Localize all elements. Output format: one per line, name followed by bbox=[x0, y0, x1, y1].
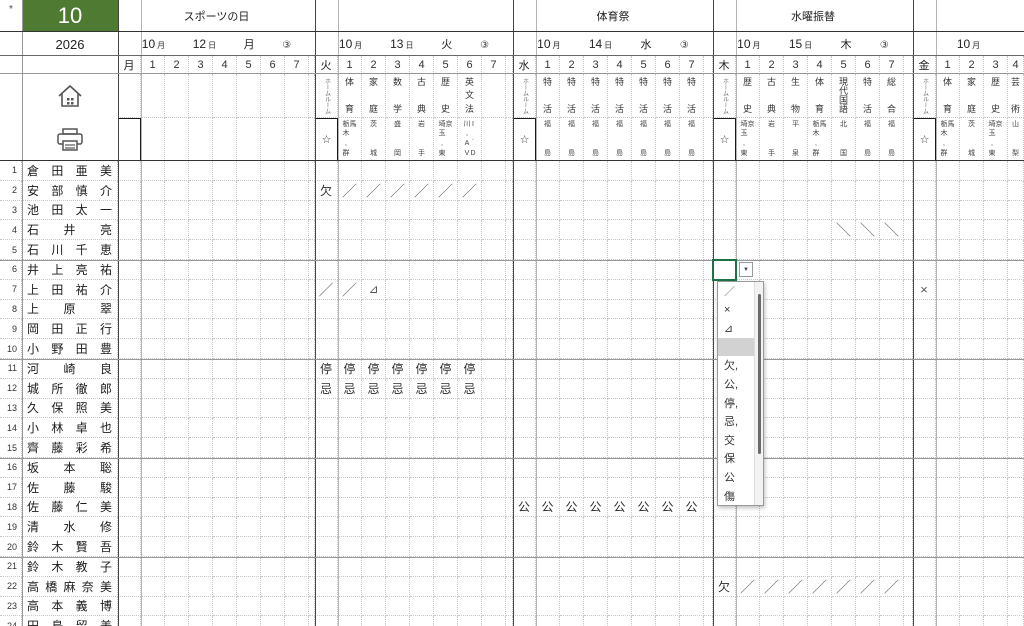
grid-cell[interactable] bbox=[189, 319, 213, 339]
grid-cell[interactable] bbox=[237, 537, 261, 557]
teacher-header[interactable]: 福島 bbox=[608, 118, 632, 161]
spacer-cell[interactable] bbox=[506, 339, 513, 359]
grid-cell[interactable] bbox=[960, 498, 984, 518]
subject-header[interactable]: 古典 bbox=[760, 74, 784, 118]
grid-cell[interactable] bbox=[1008, 319, 1024, 339]
grid-cell[interactable] bbox=[936, 418, 960, 438]
grid-cell[interactable] bbox=[118, 181, 141, 201]
grid-cell[interactable] bbox=[856, 201, 880, 221]
grid-cell[interactable] bbox=[680, 557, 704, 577]
grid-cell[interactable] bbox=[913, 260, 936, 280]
grid-cell[interactable] bbox=[434, 220, 458, 240]
grid-cell[interactable] bbox=[513, 379, 536, 399]
grid-cell[interactable] bbox=[608, 379, 632, 399]
grid-cell[interactable] bbox=[936, 517, 960, 537]
grid-cell[interactable] bbox=[832, 557, 856, 577]
dropdown-item[interactable]: ⊿ bbox=[718, 319, 756, 338]
grid-cell[interactable] bbox=[165, 577, 189, 597]
grid-cell[interactable] bbox=[362, 418, 386, 438]
grid-cell[interactable] bbox=[608, 597, 632, 617]
grid-cell[interactable] bbox=[1008, 220, 1024, 240]
grid-cell[interactable] bbox=[410, 438, 434, 458]
teacher-header[interactable]: 福島 bbox=[680, 118, 704, 161]
grid-cell[interactable] bbox=[784, 616, 808, 626]
grid-cell[interactable] bbox=[118, 240, 141, 260]
grid-cell[interactable] bbox=[338, 201, 362, 221]
grid-cell[interactable] bbox=[984, 537, 1008, 557]
grid-cell[interactable] bbox=[362, 597, 386, 617]
grid-cell[interactable] bbox=[410, 319, 434, 339]
grid-cell[interactable] bbox=[261, 517, 285, 537]
spacer-cell[interactable] bbox=[704, 161, 713, 181]
spacer-cell[interactable] bbox=[904, 498, 913, 518]
spacer-cell[interactable] bbox=[904, 319, 913, 339]
grid-cell[interactable] bbox=[1008, 478, 1024, 498]
grid-cell[interactable] bbox=[984, 498, 1008, 518]
grid-cell[interactable] bbox=[189, 399, 213, 419]
grid-cell[interactable] bbox=[338, 418, 362, 438]
grid-cell[interactable] bbox=[808, 498, 832, 518]
grid-cell[interactable] bbox=[1008, 438, 1024, 458]
period-header[interactable]: 3 bbox=[189, 56, 213, 74]
dropdown-item[interactable]: 欠, bbox=[718, 356, 756, 375]
grid-cell[interactable] bbox=[458, 616, 482, 626]
grid-cell[interactable] bbox=[880, 240, 904, 260]
row-number[interactable]: 16 bbox=[0, 458, 22, 478]
grid-cell[interactable] bbox=[960, 201, 984, 221]
grid-cell[interactable] bbox=[458, 438, 482, 458]
grid-cell[interactable]: 忌 bbox=[458, 379, 482, 399]
star-cell[interactable]: ☆ bbox=[913, 118, 936, 161]
grid-cell[interactable] bbox=[482, 478, 506, 498]
grid-cell[interactable] bbox=[434, 577, 458, 597]
grid-cell[interactable] bbox=[338, 260, 362, 280]
grid-cell[interactable] bbox=[338, 498, 362, 518]
student-name-cell[interactable]: 高本義博 bbox=[22, 597, 118, 617]
teacher-header[interactable] bbox=[237, 118, 261, 161]
grid-cell[interactable] bbox=[784, 359, 808, 379]
grid-cell[interactable] bbox=[984, 240, 1008, 260]
grid-cell[interactable] bbox=[165, 517, 189, 537]
spacer-cell[interactable] bbox=[704, 339, 713, 359]
grid-cell[interactable] bbox=[237, 418, 261, 438]
grid-cell[interactable] bbox=[482, 339, 506, 359]
dropdown-scrollbar[interactable] bbox=[754, 282, 763, 505]
grid-cell[interactable]: 公 bbox=[632, 498, 656, 518]
spacer-cell[interactable] bbox=[904, 438, 913, 458]
grid-cell[interactable] bbox=[513, 161, 536, 181]
grid-cell[interactable] bbox=[261, 418, 285, 438]
star-cell[interactable]: ☆ bbox=[513, 118, 536, 161]
period-header[interactable]: 3 bbox=[386, 56, 410, 74]
grid-cell[interactable]: 公 bbox=[536, 498, 560, 518]
grid-cell[interactable] bbox=[285, 181, 309, 201]
grid-cell[interactable] bbox=[880, 537, 904, 557]
grid-cell[interactable] bbox=[536, 458, 560, 478]
grid-cell[interactable] bbox=[165, 260, 189, 280]
grid-cell[interactable] bbox=[165, 537, 189, 557]
row-number[interactable]: 7 bbox=[0, 280, 22, 300]
grid-cell[interactable] bbox=[434, 399, 458, 419]
grid-cell[interactable] bbox=[856, 260, 880, 280]
grid-cell[interactable] bbox=[608, 220, 632, 240]
grid-cell[interactable] bbox=[913, 181, 936, 201]
grid-cell[interactable] bbox=[261, 300, 285, 320]
grid-cell[interactable] bbox=[880, 418, 904, 438]
grid-cell[interactable]: ／ bbox=[458, 181, 482, 201]
grid-cell[interactable] bbox=[608, 300, 632, 320]
grid-cell[interactable] bbox=[536, 379, 560, 399]
period-header[interactable]: 7 bbox=[880, 56, 904, 74]
grid-cell[interactable] bbox=[832, 498, 856, 518]
grid-cell[interactable] bbox=[362, 319, 386, 339]
grid-cell[interactable] bbox=[213, 359, 237, 379]
grid-cell[interactable] bbox=[880, 359, 904, 379]
grid-cell[interactable] bbox=[315, 319, 338, 339]
grid-cell[interactable] bbox=[434, 438, 458, 458]
grid-cell[interactable] bbox=[1008, 300, 1024, 320]
grid-cell[interactable] bbox=[213, 557, 237, 577]
grid-cell[interactable] bbox=[482, 597, 506, 617]
teacher-header[interactable] bbox=[285, 118, 309, 161]
grid-cell[interactable] bbox=[165, 181, 189, 201]
spacer-cell[interactable] bbox=[904, 161, 913, 181]
grid-cell[interactable] bbox=[536, 399, 560, 419]
period-header[interactable]: 1 bbox=[936, 56, 960, 74]
grid-cell[interactable] bbox=[315, 418, 338, 438]
row-number[interactable]: 22 bbox=[0, 577, 22, 597]
teacher-header[interactable]: 栃木,群馬 bbox=[808, 118, 832, 161]
grid-cell[interactable]: 忌 bbox=[338, 379, 362, 399]
grid-cell[interactable] bbox=[856, 458, 880, 478]
grid-cell[interactable] bbox=[482, 161, 506, 181]
teacher-header[interactable] bbox=[482, 118, 506, 161]
grid-cell[interactable] bbox=[458, 161, 482, 181]
period-header[interactable]: 6 bbox=[856, 56, 880, 74]
row-number[interactable]: 19 bbox=[0, 517, 22, 537]
grid-cell[interactable] bbox=[458, 220, 482, 240]
grid-cell[interactable] bbox=[608, 161, 632, 181]
grid-cell[interactable] bbox=[680, 577, 704, 597]
subject-header[interactable]: 特活 bbox=[584, 74, 608, 118]
grid-cell[interactable] bbox=[632, 399, 656, 419]
grid-cell[interactable] bbox=[832, 359, 856, 379]
grid-cell[interactable] bbox=[237, 577, 261, 597]
grid-cell[interactable] bbox=[536, 438, 560, 458]
grid-cell[interactable] bbox=[680, 597, 704, 617]
grid-cell[interactable] bbox=[285, 557, 309, 577]
grid-cell[interactable] bbox=[285, 577, 309, 597]
grid-cell[interactable] bbox=[760, 557, 784, 577]
period-header[interactable]: 3 bbox=[984, 56, 1008, 74]
grid-cell[interactable] bbox=[118, 280, 141, 300]
grid-cell[interactable] bbox=[880, 379, 904, 399]
grid-cell[interactable] bbox=[632, 240, 656, 260]
grid-cell[interactable] bbox=[458, 339, 482, 359]
grid-cell[interactable] bbox=[165, 478, 189, 498]
subject-header[interactable]: 特活 bbox=[560, 74, 584, 118]
subject-header[interactable]: 芸術 bbox=[1008, 74, 1024, 118]
grid-cell[interactable] bbox=[960, 300, 984, 320]
grid-cell[interactable] bbox=[560, 478, 584, 498]
grid-cell[interactable] bbox=[960, 517, 984, 537]
student-name-cell[interactable]: 池田太一 bbox=[22, 201, 118, 221]
grid-cell[interactable] bbox=[656, 181, 680, 201]
grid-cell[interactable] bbox=[984, 220, 1008, 240]
grid-cell[interactable] bbox=[261, 399, 285, 419]
spacer-cell[interactable] bbox=[704, 359, 713, 379]
dropdown-item[interactable] bbox=[718, 338, 756, 357]
grid-cell[interactable] bbox=[213, 399, 237, 419]
grid-cell[interactable] bbox=[338, 537, 362, 557]
teacher-header[interactable]: 茨城 bbox=[362, 118, 386, 161]
grid-cell[interactable] bbox=[315, 399, 338, 419]
grid-cell[interactable] bbox=[632, 220, 656, 240]
grid-cell[interactable] bbox=[1008, 517, 1024, 537]
teacher-header[interactable]: 平泉 bbox=[784, 118, 808, 161]
grid-cell[interactable] bbox=[632, 537, 656, 557]
grid-cell[interactable] bbox=[213, 597, 237, 617]
grid-cell[interactable] bbox=[189, 458, 213, 478]
spacer-cell[interactable] bbox=[904, 220, 913, 240]
grid-cell[interactable] bbox=[808, 616, 832, 626]
row-number[interactable]: 23 bbox=[0, 597, 22, 617]
grid-cell[interactable] bbox=[808, 220, 832, 240]
grid-cell[interactable] bbox=[513, 517, 536, 537]
homeroom-cell[interactable] bbox=[118, 74, 141, 118]
student-name-cell[interactable]: 城所徹郎 bbox=[22, 379, 118, 399]
period-header[interactable]: 5 bbox=[237, 56, 261, 74]
grid-cell[interactable] bbox=[960, 557, 984, 577]
grid-cell[interactable] bbox=[141, 339, 165, 359]
grid-cell[interactable] bbox=[362, 260, 386, 280]
grid-cell[interactable] bbox=[584, 517, 608, 537]
spacer-cell[interactable] bbox=[904, 418, 913, 438]
grid-cell[interactable] bbox=[118, 597, 141, 617]
grid-cell[interactable] bbox=[936, 201, 960, 221]
spacer-cell[interactable] bbox=[506, 498, 513, 518]
grid-cell[interactable] bbox=[386, 557, 410, 577]
grid-cell[interactable] bbox=[760, 597, 784, 617]
grid-cell[interactable] bbox=[536, 260, 560, 280]
grid-cell[interactable] bbox=[560, 577, 584, 597]
grid-cell[interactable] bbox=[880, 498, 904, 518]
grid-cell[interactable] bbox=[315, 339, 338, 359]
grid-cell[interactable] bbox=[362, 438, 386, 458]
grid-cell[interactable] bbox=[984, 438, 1008, 458]
period-header[interactable]: 4 bbox=[808, 56, 832, 74]
grid-cell[interactable]: 忌 bbox=[362, 379, 386, 399]
grid-cell[interactable] bbox=[960, 161, 984, 181]
grid-cell[interactable] bbox=[434, 616, 458, 626]
grid-cell[interactable] bbox=[118, 458, 141, 478]
subject-header[interactable]: 体育 bbox=[808, 74, 832, 118]
grid-cell[interactable] bbox=[936, 260, 960, 280]
grid-cell[interactable] bbox=[880, 260, 904, 280]
grid-cell[interactable] bbox=[632, 161, 656, 181]
grid-cell[interactable] bbox=[584, 557, 608, 577]
spacer-cell[interactable] bbox=[904, 339, 913, 359]
subject-header[interactable]: 特活 bbox=[856, 74, 880, 118]
grid-cell[interactable] bbox=[362, 240, 386, 260]
period-header[interactable]: 2 bbox=[362, 56, 386, 74]
grid-cell[interactable] bbox=[832, 280, 856, 300]
grid-cell[interactable] bbox=[784, 300, 808, 320]
grid-cell[interactable] bbox=[632, 339, 656, 359]
teacher-header[interactable] bbox=[189, 118, 213, 161]
spacer-cell[interactable] bbox=[904, 458, 913, 478]
grid-cell[interactable] bbox=[632, 359, 656, 379]
period-header[interactable]: 2 bbox=[165, 56, 189, 74]
grid-cell[interactable] bbox=[261, 557, 285, 577]
row-number[interactable]: 13 bbox=[0, 399, 22, 419]
grid-cell[interactable] bbox=[680, 458, 704, 478]
teacher-header[interactable] bbox=[261, 118, 285, 161]
grid-cell[interactable] bbox=[434, 597, 458, 617]
spacer-cell[interactable] bbox=[704, 300, 713, 320]
grid-cell[interactable] bbox=[584, 240, 608, 260]
period-header[interactable]: 1 bbox=[536, 56, 560, 74]
spacer-cell[interactable] bbox=[506, 220, 513, 240]
grid-cell[interactable] bbox=[315, 597, 338, 617]
grid-cell[interactable] bbox=[513, 438, 536, 458]
grid-cell[interactable] bbox=[760, 260, 784, 280]
grid-cell[interactable] bbox=[165, 240, 189, 260]
grid-cell[interactable] bbox=[936, 319, 960, 339]
grid-cell[interactable] bbox=[118, 478, 141, 498]
grid-cell[interactable] bbox=[141, 240, 165, 260]
spacer-cell[interactable] bbox=[704, 201, 713, 221]
grid-cell[interactable] bbox=[213, 379, 237, 399]
grid-cell[interactable] bbox=[482, 260, 506, 280]
grid-cell[interactable] bbox=[338, 220, 362, 240]
grid-cell[interactable] bbox=[808, 517, 832, 537]
grid-cell[interactable] bbox=[632, 280, 656, 300]
teacher-header[interactable]: 埼玉,東京 bbox=[434, 118, 458, 161]
grid-cell[interactable] bbox=[536, 319, 560, 339]
grid-cell[interactable] bbox=[285, 458, 309, 478]
grid-cell[interactable] bbox=[560, 438, 584, 458]
row-number[interactable]: 11 bbox=[0, 359, 22, 379]
grid-cell[interactable] bbox=[386, 458, 410, 478]
grid-cell[interactable] bbox=[315, 557, 338, 577]
grid-cell[interactable] bbox=[237, 399, 261, 419]
grid-cell[interactable] bbox=[656, 597, 680, 617]
grid-cell[interactable] bbox=[960, 220, 984, 240]
grid-cell[interactable] bbox=[434, 280, 458, 300]
grid-cell[interactable] bbox=[1008, 418, 1024, 438]
spacer-cell[interactable] bbox=[704, 379, 713, 399]
grid-cell[interactable] bbox=[237, 339, 261, 359]
spacer-cell[interactable] bbox=[904, 399, 913, 419]
grid-cell[interactable] bbox=[482, 359, 506, 379]
grid-cell[interactable] bbox=[189, 339, 213, 359]
grid-cell[interactable] bbox=[165, 379, 189, 399]
grid-cell[interactable] bbox=[285, 399, 309, 419]
grid-cell[interactable] bbox=[458, 319, 482, 339]
grid-cell[interactable] bbox=[584, 359, 608, 379]
grid-cell[interactable] bbox=[165, 201, 189, 221]
teacher-header[interactable]: 福島 bbox=[856, 118, 880, 161]
grid-cell[interactable] bbox=[760, 220, 784, 240]
subject-header[interactable]: 現代国語 bbox=[832, 74, 856, 118]
grid-cell[interactable] bbox=[165, 359, 189, 379]
grid-cell[interactable] bbox=[261, 359, 285, 379]
dropdown-item[interactable]: 公, bbox=[718, 375, 756, 394]
spacer-cell[interactable] bbox=[704, 280, 713, 300]
grid-cell[interactable] bbox=[1008, 280, 1024, 300]
grid-cell[interactable] bbox=[713, 616, 736, 626]
homeroom-cell[interactable]: ホームルーム bbox=[315, 74, 338, 118]
grid-cell[interactable] bbox=[984, 557, 1008, 577]
grid-cell[interactable] bbox=[458, 418, 482, 438]
grid-cell[interactable] bbox=[285, 220, 309, 240]
teacher-header[interactable]: 埼玉,東京 bbox=[984, 118, 1008, 161]
grid-cell[interactable] bbox=[856, 478, 880, 498]
teacher-header[interactable] bbox=[213, 118, 237, 161]
grid-cell[interactable] bbox=[584, 418, 608, 438]
grid-cell[interactable] bbox=[584, 201, 608, 221]
grid-cell[interactable] bbox=[338, 597, 362, 617]
grid-cell[interactable] bbox=[560, 517, 584, 537]
grid-cell[interactable] bbox=[536, 339, 560, 359]
grid-cell[interactable] bbox=[141, 577, 165, 597]
row-number[interactable]: 2 bbox=[0, 181, 22, 201]
grid-cell[interactable] bbox=[560, 399, 584, 419]
row-number[interactable]: 15 bbox=[0, 438, 22, 458]
period-header[interactable]: 1 bbox=[736, 56, 760, 74]
grid-cell[interactable] bbox=[118, 399, 141, 419]
banner-cell[interactable]: 水曜振替 bbox=[713, 0, 913, 32]
grid-cell[interactable] bbox=[482, 379, 506, 399]
row-number[interactable]: 6 bbox=[0, 260, 22, 280]
grid-cell[interactable] bbox=[386, 399, 410, 419]
subject-header[interactable]: 体育 bbox=[338, 74, 362, 118]
grid-cell[interactable] bbox=[189, 240, 213, 260]
grid-cell[interactable] bbox=[410, 616, 434, 626]
grid-cell[interactable] bbox=[560, 339, 584, 359]
grid-cell[interactable] bbox=[285, 517, 309, 537]
spacer-cell[interactable] bbox=[704, 498, 713, 518]
grid-cell[interactable] bbox=[608, 478, 632, 498]
grid-cell[interactable] bbox=[410, 201, 434, 221]
grid-cell[interactable] bbox=[808, 537, 832, 557]
row-number[interactable]: 5 bbox=[0, 240, 22, 260]
grid-cell[interactable] bbox=[118, 260, 141, 280]
grid-cell[interactable] bbox=[560, 161, 584, 181]
grid-cell[interactable] bbox=[608, 537, 632, 557]
grid-cell[interactable] bbox=[832, 300, 856, 320]
grid-cell[interactable] bbox=[362, 557, 386, 577]
grid-cell[interactable] bbox=[608, 181, 632, 201]
grid-cell[interactable] bbox=[808, 359, 832, 379]
grid-cell[interactable] bbox=[362, 537, 386, 557]
grid-cell[interactable] bbox=[536, 517, 560, 537]
grid-cell[interactable] bbox=[913, 577, 936, 597]
grid-cell[interactable] bbox=[165, 300, 189, 320]
grid-cell[interactable] bbox=[632, 478, 656, 498]
grid-cell[interactable] bbox=[338, 161, 362, 181]
grid-cell[interactable] bbox=[213, 161, 237, 181]
grid-cell[interactable] bbox=[984, 478, 1008, 498]
spacer-cell[interactable] bbox=[704, 240, 713, 260]
grid-cell[interactable] bbox=[680, 260, 704, 280]
grid-cell[interactable]: 停 bbox=[315, 359, 338, 379]
grid-cell[interactable] bbox=[165, 418, 189, 438]
grid-cell[interactable] bbox=[386, 319, 410, 339]
grid-cell[interactable] bbox=[213, 181, 237, 201]
spacer-cell[interactable] bbox=[704, 577, 713, 597]
